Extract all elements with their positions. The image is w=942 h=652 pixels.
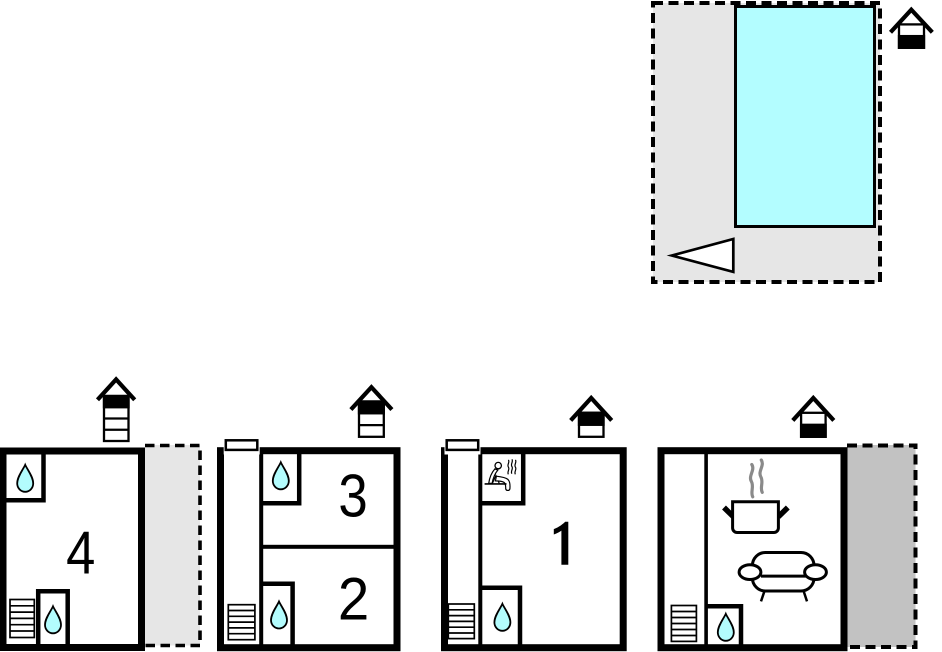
svg-text:2: 2 bbox=[338, 566, 369, 633]
svg-text:4: 4 bbox=[66, 519, 95, 586]
svg-text:3: 3 bbox=[338, 462, 367, 529]
